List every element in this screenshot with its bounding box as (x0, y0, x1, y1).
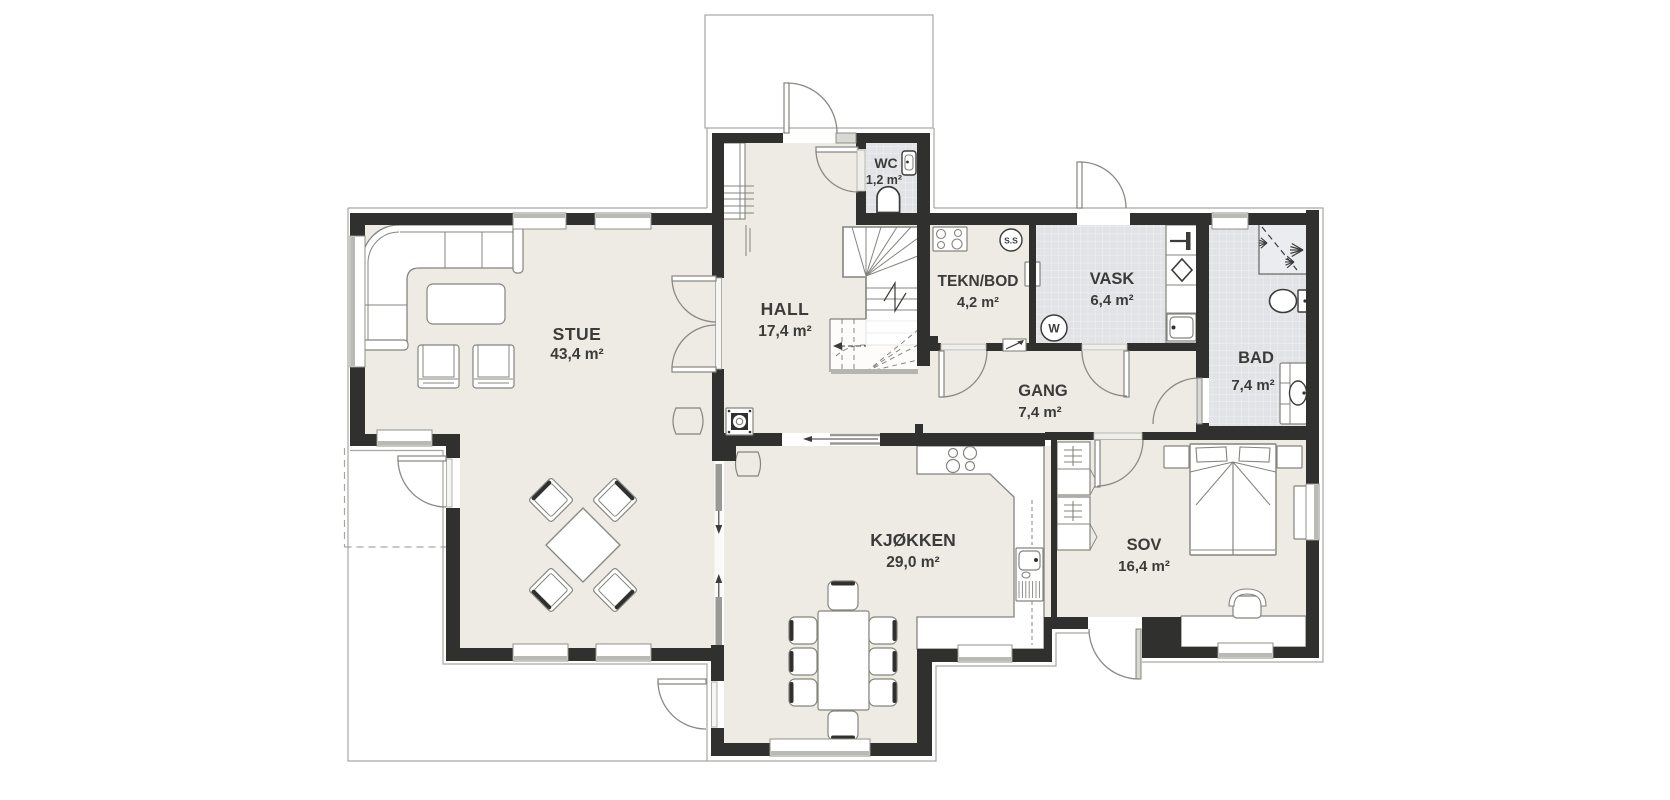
svg-text:BAD: BAD (1238, 349, 1274, 367)
svg-text:16,4 m²: 16,4 m² (1118, 558, 1170, 575)
svg-text:1,2 m²: 1,2 m² (866, 173, 902, 187)
svg-text:GANG: GANG (1018, 382, 1068, 400)
svg-text:STUE: STUE (553, 324, 602, 344)
svg-text:6,4 m²: 6,4 m² (1090, 292, 1133, 309)
svg-text:KJØKKEN: KJØKKEN (870, 530, 956, 550)
svg-text:HALL: HALL (761, 299, 810, 319)
svg-text:43,4 m²: 43,4 m² (550, 346, 603, 363)
svg-text:29,0 m²: 29,0 m² (886, 554, 939, 571)
svg-text:TEKN/BOD: TEKN/BOD (938, 273, 1019, 290)
svg-text:WC: WC (874, 155, 897, 171)
svg-text:W: W (1048, 322, 1060, 336)
svg-text:17,4 m²: 17,4 m² (758, 323, 811, 340)
svg-text:7,4 m²: 7,4 m² (1018, 404, 1061, 421)
svg-text:S.S: S.S (1004, 236, 1018, 246)
svg-text:SOV: SOV (1127, 536, 1162, 554)
svg-text:7,4 m²: 7,4 m² (1231, 377, 1274, 394)
svg-text:4,2 m²: 4,2 m² (957, 295, 999, 311)
svg-text:VASK: VASK (1090, 270, 1135, 288)
